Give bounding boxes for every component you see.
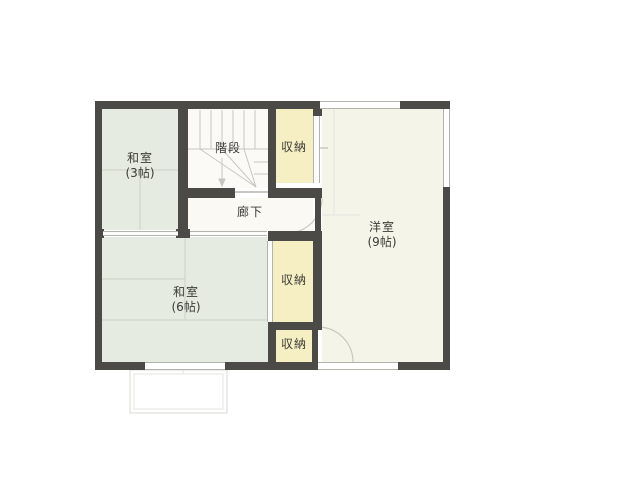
label-closet-middle: 収納 [281, 273, 307, 288]
wall-closet-middle-right [313, 231, 322, 330]
label-closet-top: 収納 [281, 140, 307, 155]
label-hallway: 廊下 [237, 205, 263, 220]
room-name: 和室 [172, 285, 201, 300]
wall-closet-bottom-left [268, 322, 276, 370]
fusuma-washitsu3-washitsu6 [103, 231, 178, 236]
wall-outer-top-left [95, 101, 320, 109]
fusuma-closet-middle [267, 241, 273, 322]
room-name: 収納 [281, 273, 307, 288]
label-washitsu-6: 和室 (6帖) [172, 285, 201, 314]
door-leaf-hallway [315, 198, 321, 231]
room-size: (9帖) [368, 235, 397, 250]
wall-outer-right [443, 187, 450, 370]
wall-stairs-bottom [188, 188, 235, 198]
room-name: 廊下 [237, 205, 263, 220]
wall-outer-bottom-left [95, 362, 145, 370]
fusuma-hallway-washitsu6 [190, 231, 267, 236]
label-youshitsu: 洋室 (9帖) [368, 220, 397, 249]
room-name: 洋室 [368, 220, 397, 235]
floorplan: 和室 (3帖) 階段 収納 廊下 洋室 (9帖) 和室 (6帖) 収納 収納 [0, 0, 640, 480]
room-name: 収納 [281, 140, 307, 155]
window-right [443, 109, 450, 187]
wall-stairs-closet [268, 109, 276, 198]
window-bottom-right [318, 362, 398, 370]
wall-outer-top-right [400, 101, 450, 109]
wall-closet-divider [268, 322, 322, 330]
window-top [320, 101, 400, 109]
room-size: (6帖) [172, 300, 201, 315]
room-size: (3帖) [126, 166, 155, 181]
label-closet-bottom: 収納 [281, 337, 307, 352]
wall-outer-bottom-right [398, 362, 450, 370]
wall-closet-top-bottom [268, 188, 322, 198]
door-closet-top [313, 116, 320, 183]
window-bottom-left [145, 362, 225, 370]
door-leaf-closet-bottom [312, 330, 318, 362]
label-washitsu-3: 和室 (3帖) [126, 151, 155, 180]
wall-fusuma-stub-center [176, 229, 190, 238]
label-stairs: 階段 [215, 141, 241, 156]
wall-washitsu3-stairs [178, 109, 188, 238]
room-name: 収納 [281, 337, 307, 352]
room-name: 階段 [215, 141, 241, 156]
room-name: 和室 [126, 151, 155, 166]
